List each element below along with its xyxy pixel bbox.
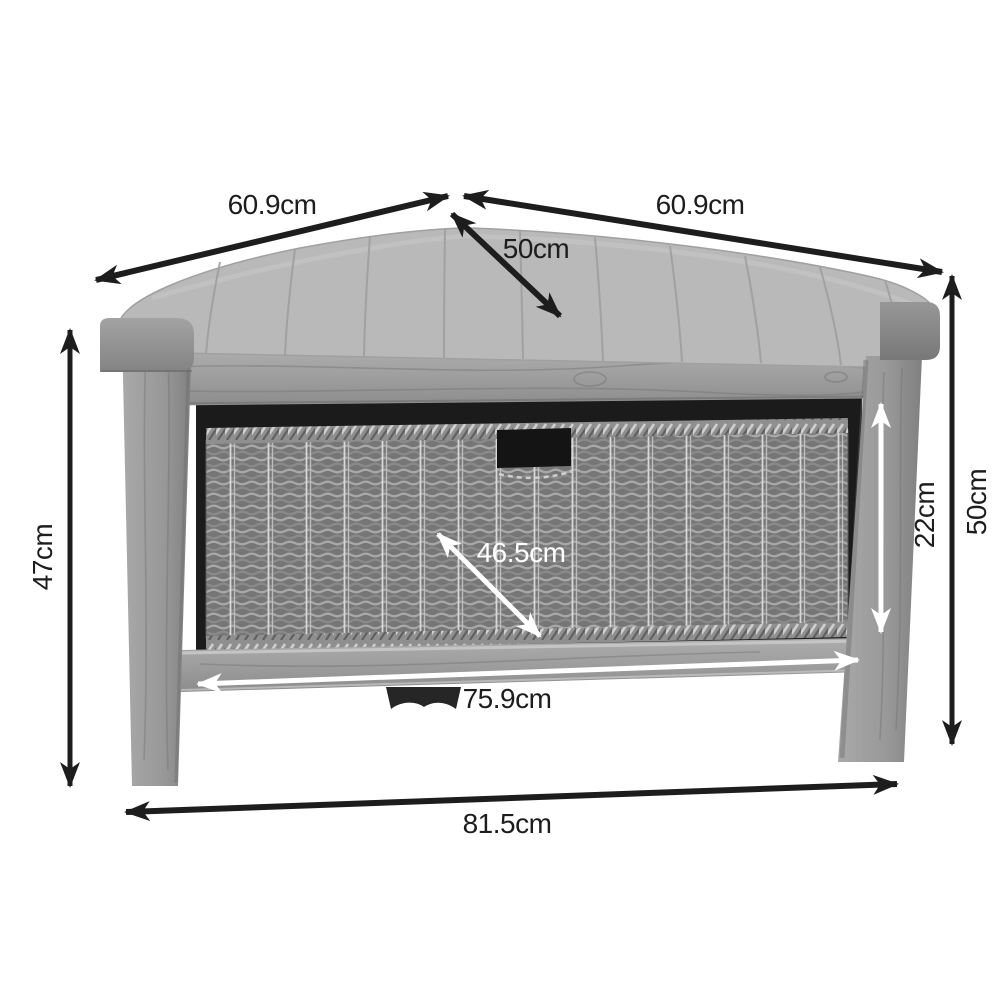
right-arm-cap (880, 302, 940, 360)
basket-handle-cutout (497, 428, 571, 468)
dim-label-drawer-diagonal: 46.5cm (477, 537, 566, 568)
cushion-seam (444, 229, 445, 358)
dim-label-seat-right-width: 60.9cm (656, 189, 745, 220)
dim-label-inner-width: 75.9cm (463, 683, 552, 714)
dim-label-seat-depth: 50cm (503, 233, 569, 264)
dim-label-left-height: 47cm (27, 524, 58, 590)
dim-label-drawer-height: 22cm (909, 482, 940, 548)
diagram-canvas: 60.9cm 60.9cm 50cm 47cm 50cm 22cm 46.5cm (0, 0, 1000, 1000)
dim-label-seat-left-width: 60.9cm (228, 189, 317, 220)
dim-overall-width: 81.5cm (126, 784, 897, 839)
dim-label-overall-height: 50cm (961, 469, 992, 535)
dim-left-height: 47cm (27, 330, 70, 786)
dimension-diagram: 60.9cm 60.9cm 50cm 47cm 50cm 22cm 46.5cm (0, 0, 1000, 1000)
wicker-basket-drawer (206, 418, 848, 651)
left-leg (122, 332, 192, 786)
left-arm-cap (100, 318, 194, 372)
dim-label-overall-width: 81.5cm (463, 808, 552, 839)
dim-overall-height: 50cm (952, 276, 992, 744)
center-foot (386, 687, 461, 709)
